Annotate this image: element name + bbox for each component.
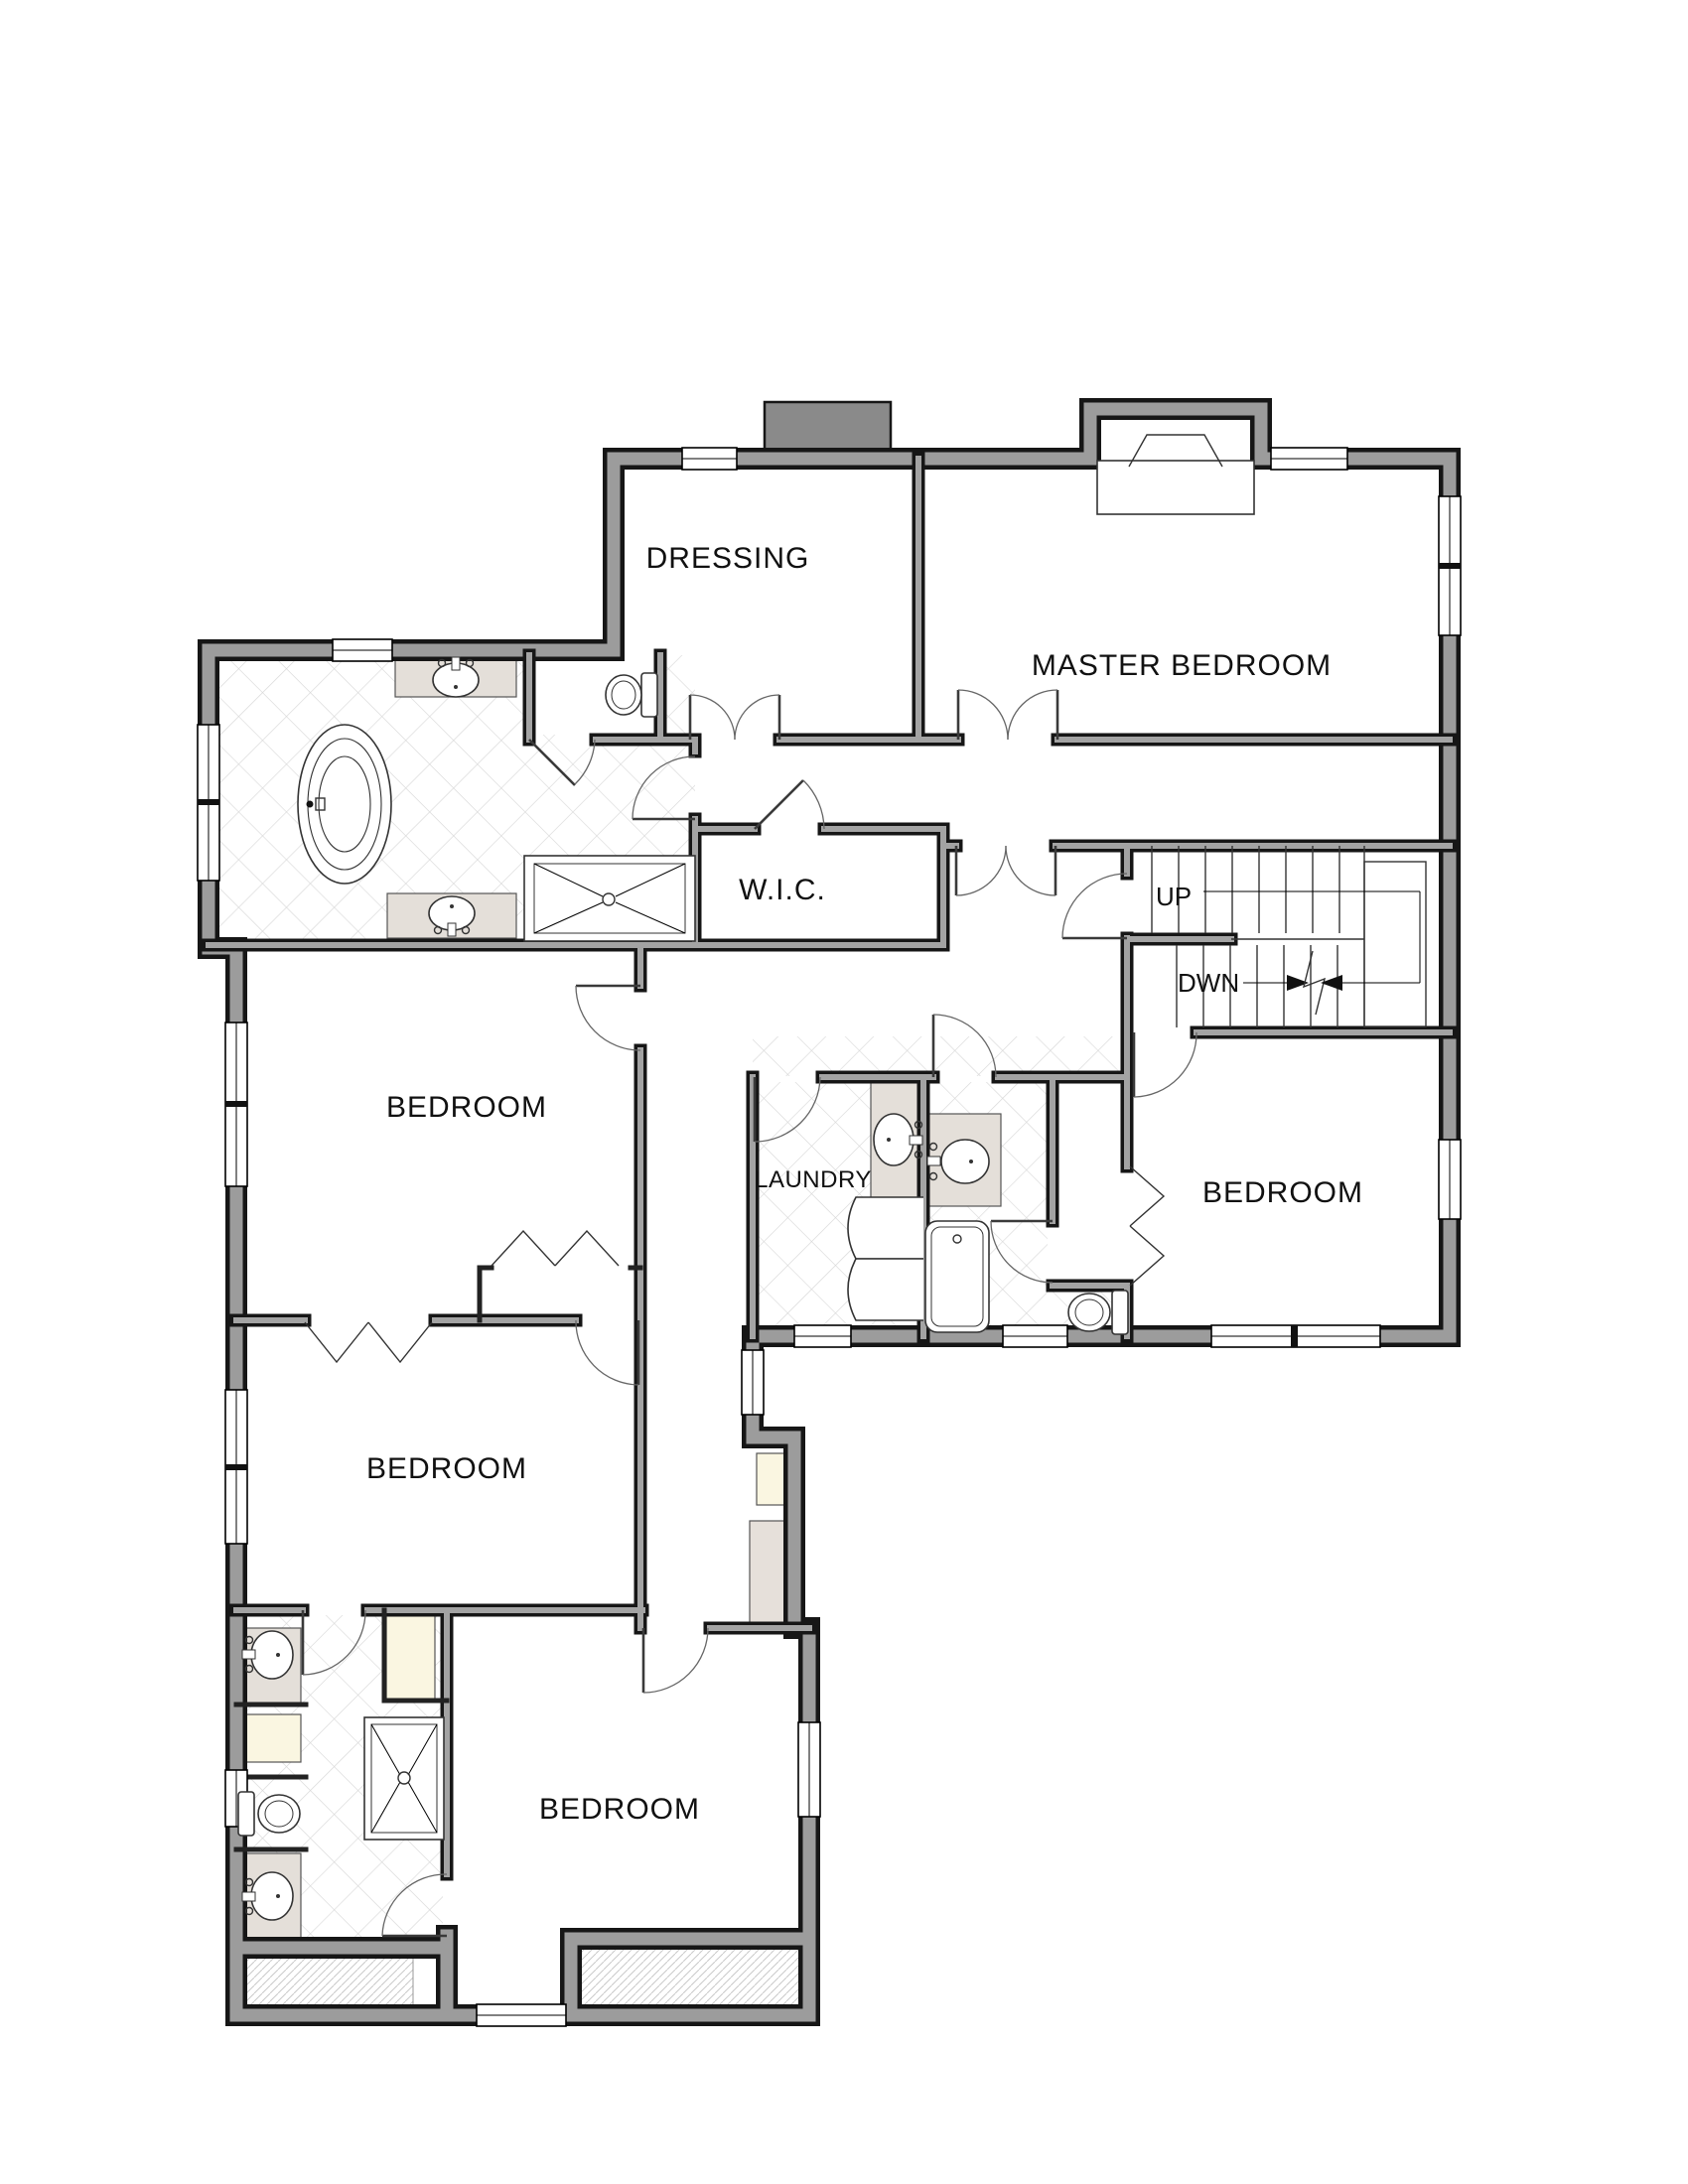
stairs-down-label: DWN [1178, 968, 1239, 998]
window [742, 1350, 764, 1415]
floor-plan: UP DWN [0, 0, 1688, 2184]
room-label-bedroom-bottom: BEDROOM [539, 1793, 700, 1826]
door-double-master [958, 690, 1057, 740]
door-bedroom-mid-left [576, 986, 640, 1050]
room-label-bedroom-mid-left: BEDROOM [386, 1091, 547, 1124]
door-bedroom-lower-left [576, 1320, 638, 1385]
master-wc-toilet [606, 673, 657, 717]
master-shower [524, 856, 695, 941]
room-label-master-bedroom: MASTER BEDROOM [1032, 649, 1332, 682]
door-double-dressing [690, 695, 779, 740]
room-label-laundry: LAUNDRY [755, 1166, 872, 1193]
hallbath-toilet [1068, 1291, 1128, 1334]
room-label-dressing: DRESSING [646, 542, 810, 575]
door-double-hall [956, 846, 1055, 895]
window [225, 1390, 247, 1544]
window [198, 725, 219, 881]
window [225, 1023, 247, 1186]
stairs-up-label: UP [1156, 882, 1192, 911]
hallbath-sink [927, 1140, 989, 1183]
window [333, 639, 392, 661]
window [477, 2004, 566, 2026]
master-bathtub [298, 725, 391, 884]
chimney-block [765, 402, 891, 456]
jjbath-toilet [238, 1792, 300, 1836]
room-label-wic: W.I.C. [739, 874, 826, 906]
door-stairs [1062, 874, 1127, 938]
hallbath-tub [925, 1221, 989, 1332]
jjbath-shower [364, 1717, 444, 1840]
door-bedroom-right [1134, 1032, 1196, 1097]
window [798, 1722, 820, 1817]
fireplace [1097, 435, 1254, 514]
floor-plan-drawing: UP DWN [0, 0, 1688, 2184]
bifold-right-closet [1130, 1166, 1164, 1286]
window [1271, 448, 1347, 470]
door-wic [755, 780, 824, 829]
bifold-mid-left-closet [492, 1231, 619, 1266]
window [1439, 496, 1461, 635]
washer-dryer [848, 1197, 923, 1320]
window [1211, 1325, 1380, 1347]
window [1439, 1140, 1461, 1219]
window [682, 448, 737, 470]
window [794, 1325, 851, 1347]
room-label-bedroom-right: BEDROOM [1202, 1176, 1363, 1209]
window [1003, 1325, 1067, 1347]
room-label-bedroom-lower-left: BEDROOM [366, 1452, 527, 1485]
bifold-lower-left-closet [305, 1322, 432, 1362]
door-bedroom-bottom [643, 1628, 708, 1693]
